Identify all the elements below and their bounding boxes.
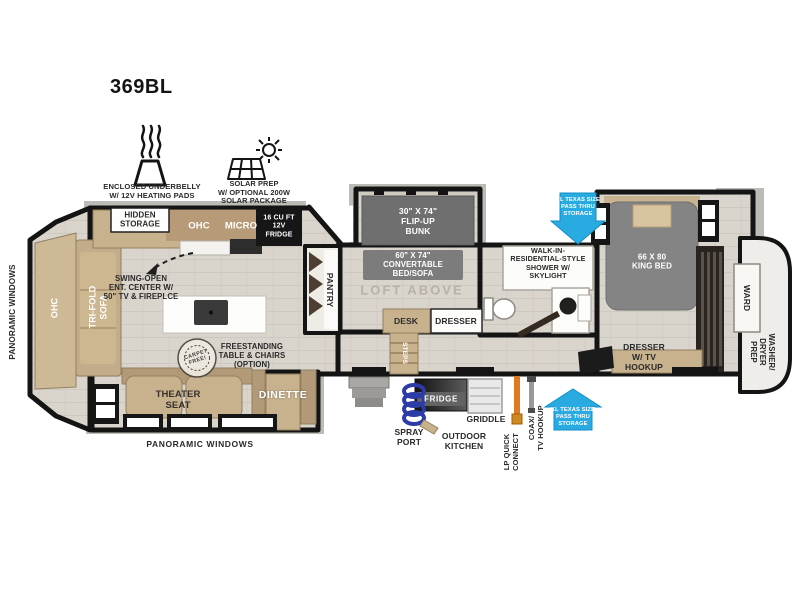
freestanding-table-label: FREESTANDING TABLE & CHAIRS (OPTION) <box>219 342 286 370</box>
ward-label: WARD <box>742 285 752 311</box>
outdoor-fridge-label: FRIDGE <box>424 394 458 403</box>
hidden-storage-label: HIDDEN STORAGE <box>120 211 160 230</box>
micro-label: MICRO <box>225 220 257 231</box>
steps-label: STEPS <box>400 342 408 364</box>
entry-step-2 <box>352 388 386 398</box>
loft-above-label: LOFT ABOVE <box>360 282 463 297</box>
theater-seat-label: THEATER SEAT <box>156 389 201 411</box>
pantry-label: PANTRY <box>325 273 335 308</box>
bunk-dresser-label: DRESSER <box>435 316 477 326</box>
floorplan-page: 369BL ENCLOSED UNDERBELLY W/ 12V HEATING… <box>0 0 800 600</box>
entry-step-1 <box>349 377 389 388</box>
underbelly-label: ENCLOSED UNDERBELLY W/ 12V HEATING PADS <box>103 183 200 201</box>
fridge-label: 16 CU FT 12V FRIDGE <box>263 215 294 240</box>
bath-sink <box>560 298 577 315</box>
floorplan-title: 369BL <box>110 76 173 99</box>
ohc-kitchen-label: OHC <box>188 220 209 231</box>
shower-label: WALK-IN- RESIDENTIAL-STYLE SHOWER W/ SKY… <box>510 247 585 281</box>
desk-label: DESK <box>394 316 418 326</box>
ent-center-label: SWING-OPEN ENT. CENTER W/ 50" TV & FIREP… <box>104 274 179 302</box>
bedroom-dresser-label: DRESSER W/ TV HOOKUP <box>623 342 665 372</box>
pass-thru-bottom-label: XL TEXAS SIZE PASS THRU STORAGE <box>551 407 595 427</box>
toilet <box>493 299 515 319</box>
panoramic-windows-front-label: PANORAMIC WINDOWS <box>8 264 18 359</box>
outdoor-kitchen <box>404 376 536 434</box>
flip-up-bunk-label: 30" X 74" FLIP-UP BUNK <box>399 206 437 236</box>
spray-port-label: SPRAY PORT <box>394 427 423 447</box>
washer-dryer-label: WASHER/ DRYER PREP <box>748 333 776 370</box>
king-bed-label: 66 X 80 KING BED <box>632 253 672 272</box>
pass-thru-top-label: XL TEXAS SIZE PASS THRU STORAGE <box>556 197 600 217</box>
outdoor-kitchen-label: OUTDOOR KITCHEN <box>442 431 486 451</box>
convertible-bed-label: 60" X 74" CONVERTABLE BED/SOFA <box>383 251 443 279</box>
entry-step-3 <box>355 398 383 407</box>
solar-panel-icon <box>228 137 282 179</box>
solar-label: SOLAR PREP W/ OPTIONAL 200W SOLAR PACKAG… <box>218 180 290 206</box>
ohc-front-label: OHC <box>50 298 61 318</box>
kitchen-sink-counter <box>180 241 230 255</box>
lp-quick-connect-label: LP QUICK CONNECT <box>503 433 521 471</box>
griddle-label: GRIDDLE <box>467 414 506 424</box>
dinette-label: DINETTE <box>259 389 307 401</box>
bed-pillow <box>633 205 671 227</box>
coax-tv-hookup-label: COAX/ TV HOOKUP <box>528 405 546 451</box>
panoramic-windows-bottom-label: PANORAMIC WINDOWS <box>146 439 253 449</box>
toilet-tank <box>484 298 493 320</box>
heating-pads-icon <box>135 126 165 185</box>
